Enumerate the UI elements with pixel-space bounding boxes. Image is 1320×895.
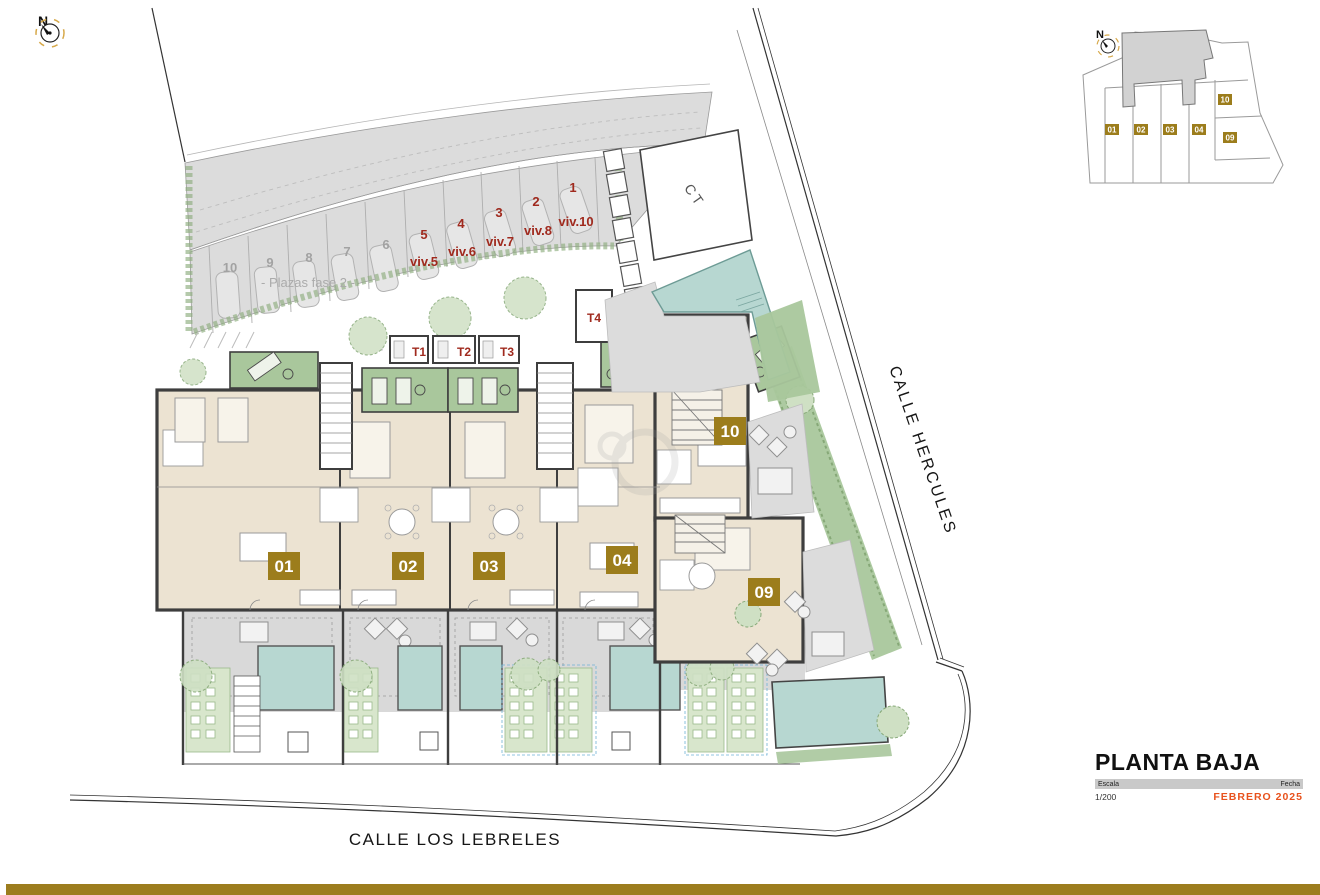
unit-badge-03: 03	[473, 552, 505, 580]
svg-text:04: 04	[1195, 126, 1204, 135]
svg-text:01: 01	[275, 557, 294, 576]
svg-text:09: 09	[1226, 134, 1235, 143]
parking-space-number: 4	[457, 216, 465, 231]
plan-title: PLANTA BAJA	[1095, 750, 1303, 775]
parking-space-number: 1	[569, 180, 576, 195]
svg-text:03: 03	[1166, 126, 1175, 135]
svg-text:02: 02	[399, 557, 418, 576]
viv-label: viv.7	[486, 234, 514, 249]
svg-text:02: 02	[1137, 126, 1146, 135]
svg-text:N: N	[1096, 29, 1104, 41]
unit-badge-09: 09	[748, 578, 780, 606]
site-plan-page: 10 9 8 7 6 5 4 3 2 1 viv.5 viv.6 viv.7 v…	[0, 0, 1320, 895]
keyplan-north-compass: N	[1096, 29, 1119, 57]
pool	[258, 646, 680, 710]
svg-text:10: 10	[721, 422, 740, 441]
footer-bar	[6, 884, 1320, 895]
svg-text:03: 03	[480, 557, 499, 576]
unit-badge-02: 02	[392, 552, 424, 580]
scale-label: Escala	[1098, 781, 1119, 788]
street-label-calle-los-lebreles: CALLE LOS LEBRELES	[349, 830, 561, 849]
parking-space-number: 6	[382, 237, 389, 252]
keyplan-unit-badge-09: 09	[1223, 132, 1237, 143]
ct-building: CT	[640, 130, 752, 260]
storage-t1-label: T1	[412, 345, 426, 359]
unit-badge-01: 01	[268, 552, 300, 580]
plazas-fase-2-label: - Plazas fase 2 -	[261, 275, 355, 290]
viv-label: viv.5	[410, 254, 438, 269]
viv-label: viv.6	[448, 244, 476, 259]
keyplan-unit-badge-10: 10	[1218, 94, 1232, 105]
key-plan: N 01 02 03 04 09 10	[1083, 29, 1283, 183]
parking-space-number: 3	[495, 205, 502, 220]
storage-t2-label: T2	[457, 345, 471, 359]
title-block: PLANTA BAJA Escala Fecha 1/200 FEBRERO 2…	[1095, 750, 1303, 803]
storage-t3-label: T3	[500, 345, 514, 359]
street-label-calle-hercules: CALLE HERCULES	[885, 364, 959, 537]
viv-label: viv.10	[558, 214, 593, 229]
parking-space-number: 8	[305, 250, 312, 265]
pool	[772, 677, 888, 748]
svg-text:09: 09	[755, 583, 774, 602]
svg-text:04: 04	[613, 551, 632, 570]
svg-text:01: 01	[1108, 126, 1117, 135]
unit-badge-04: 04	[606, 546, 638, 574]
parking-space-number: 7	[343, 244, 350, 259]
unit-badge-10: 10	[714, 417, 746, 445]
keyplan-unit-badge-02: 02	[1134, 124, 1148, 135]
parking-space-number: 2	[532, 194, 539, 209]
scale-value: 1/200	[1095, 792, 1116, 802]
storage-t4-label: T4	[587, 311, 601, 325]
keyplan-unit-badge-01: 01	[1105, 124, 1119, 135]
keyplan-unit-badge-04: 04	[1192, 124, 1206, 135]
viv-label: viv.8	[524, 223, 552, 238]
parking-space-number: 10	[223, 260, 237, 275]
svg-text:10: 10	[1221, 96, 1230, 105]
parking-space-number: 5	[420, 227, 427, 242]
date-value: FEBRERO 2025	[1213, 791, 1303, 803]
keyplan-unit-badge-03: 03	[1163, 124, 1177, 135]
north-compass: N	[36, 13, 64, 47]
parking-space-number: 9	[266, 255, 273, 270]
date-label: Fecha	[1281, 781, 1300, 788]
